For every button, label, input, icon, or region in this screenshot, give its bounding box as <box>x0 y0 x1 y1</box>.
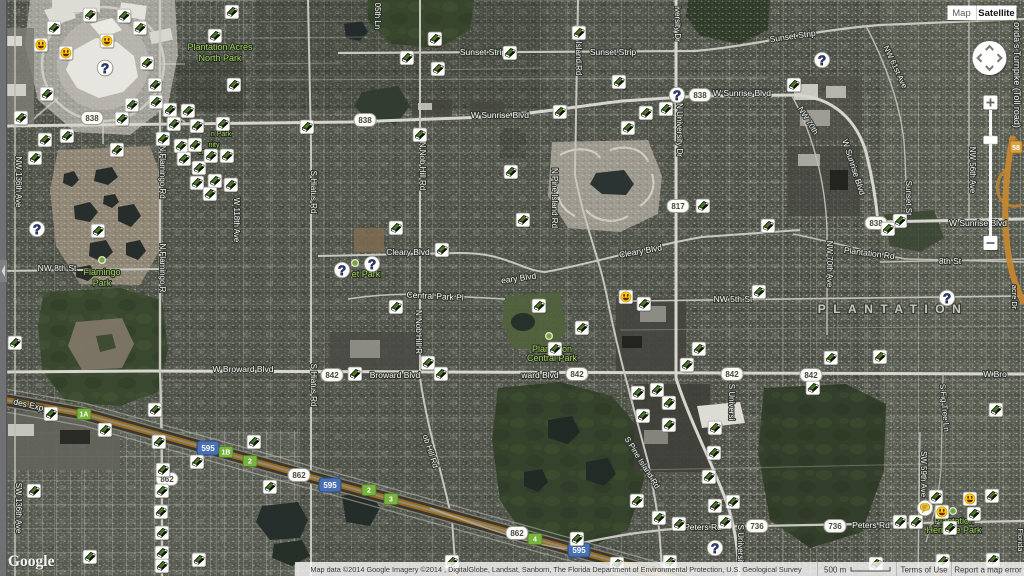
svg-text:W Sunrise Blvd: W Sunrise Blvd <box>471 110 529 120</box>
svg-text:N University Dr: N University Dr <box>675 103 684 157</box>
svg-text:842: 842 <box>725 370 739 379</box>
svg-text:NW 5th St: NW 5th St <box>714 294 753 304</box>
svg-text:842: 842 <box>804 371 818 380</box>
svg-text:ward Blvd: ward Blvd <box>520 370 559 380</box>
svg-text:W Sunrise Blvd: W Sunrise Blvd <box>949 218 1007 228</box>
svg-text:N Nob Hill R: N Nob Hill R <box>414 310 423 354</box>
svg-text:W Broward Blvd: W Broward Blvd <box>213 364 274 374</box>
svg-text:1B: 1B <box>222 450 231 457</box>
svg-text:Map: Map <box>952 8 970 19</box>
svg-text:NW 8th St: NW 8th St <box>38 263 77 273</box>
svg-text:Sunset Strip: Sunset Strip <box>590 47 637 57</box>
svg-text:2: 2 <box>367 488 371 495</box>
svg-text:S University: S University <box>736 525 745 568</box>
svg-text:S Hiatus Rd: S Hiatus Rd <box>309 171 318 214</box>
svg-text:8th St: 8th St <box>939 256 962 266</box>
svg-text:838: 838 <box>85 114 99 123</box>
svg-text:736: 736 <box>750 522 764 531</box>
svg-text:SW 136th Ave: SW 136th Ave <box>14 483 23 534</box>
svg-text:N Nob Hill Rd: N Nob Hill Rd <box>418 142 427 190</box>
svg-text:Google: Google <box>8 553 55 570</box>
svg-text:736: 736 <box>828 522 842 531</box>
svg-text:Report a map error: Report a map error <box>954 566 1022 575</box>
svg-text:n Park: n Park <box>211 131 232 138</box>
svg-text:2: 2 <box>248 459 252 466</box>
svg-text:1A: 1A <box>80 412 89 419</box>
svg-text:S Hiatus Rd: S Hiatus Rd <box>309 364 318 407</box>
svg-text:N Pine Island Rd: N Pine Island Rd <box>550 168 559 228</box>
svg-text:North Park: North Park <box>198 53 242 63</box>
svg-text:842: 842 <box>570 370 584 379</box>
svg-text:Satellite: Satellite <box>978 8 1014 19</box>
svg-text:NW 136th Ave: NW 136th Ave <box>14 157 23 209</box>
svg-text:4: 4 <box>533 537 537 544</box>
svg-text:595: 595 <box>572 546 586 555</box>
svg-text:N Flamingo Rd: N Flamingo Rd <box>158 145 167 198</box>
svg-text:3: 3 <box>389 497 393 504</box>
svg-text:58: 58 <box>1012 145 1020 152</box>
svg-text:orida's Turnpike (Toll road): orida's Turnpike (Toll road) <box>1012 22 1022 128</box>
svg-text:Park: Park <box>93 278 112 288</box>
svg-text:Map data ©2014 Google Imagery: Map data ©2014 Google Imagery ©2014 , Di… <box>310 565 802 574</box>
svg-text:nity: nity <box>209 142 220 149</box>
svg-text:862: 862 <box>510 529 524 538</box>
svg-text:W 118th Ave: W 118th Ave <box>232 198 241 243</box>
svg-text:838: 838 <box>693 91 707 100</box>
svg-text:595: 595 <box>201 444 215 453</box>
svg-text:838: 838 <box>358 116 372 125</box>
svg-text:Cleary Blvd: Cleary Blvd <box>386 247 430 257</box>
svg-text:Sunset Strip: Sunset Strip <box>460 47 507 57</box>
svg-text:W Sunrise Blvd: W Sunrise Blvd <box>713 88 771 98</box>
svg-text:NW 70th Ave: NW 70th Ave <box>825 241 834 288</box>
svg-text:Peters Rd: Peters Rd <box>852 520 890 530</box>
svg-text:SW 59th Ave: SW 59th Ave <box>919 451 928 498</box>
svg-text:N Flamingo R: N Flamingo R <box>158 244 167 293</box>
svg-text:Broward Blvd: Broward Blvd <box>370 370 421 380</box>
svg-text:NW 56th Ave: NW 56th Ave <box>968 147 977 194</box>
svg-text:Florida: Florida <box>1016 529 1024 553</box>
svg-text:iversity Dr: iversity Dr <box>673 6 682 42</box>
svg-text:817: 817 <box>671 202 685 211</box>
svg-text:Flamingo: Flamingo <box>83 267 120 277</box>
svg-text:595: 595 <box>323 481 337 490</box>
svg-text:S Universi: S Universi <box>727 384 736 421</box>
svg-text:05th Ln: 05th Ln <box>373 3 382 30</box>
svg-text:842: 842 <box>325 371 339 380</box>
svg-text:Sunset St: Sunset St <box>904 181 913 216</box>
svg-text:862: 862 <box>292 471 306 480</box>
svg-text:Peters Rd: Peters Rd <box>684 522 722 532</box>
svg-text:500 m: 500 m <box>824 566 847 575</box>
svg-text:W Bro: W Bro <box>983 369 1007 379</box>
svg-text:Terms of Use: Terms of Use <box>900 566 948 575</box>
svg-text:acre Dr: acre Dr <box>1010 285 1019 310</box>
